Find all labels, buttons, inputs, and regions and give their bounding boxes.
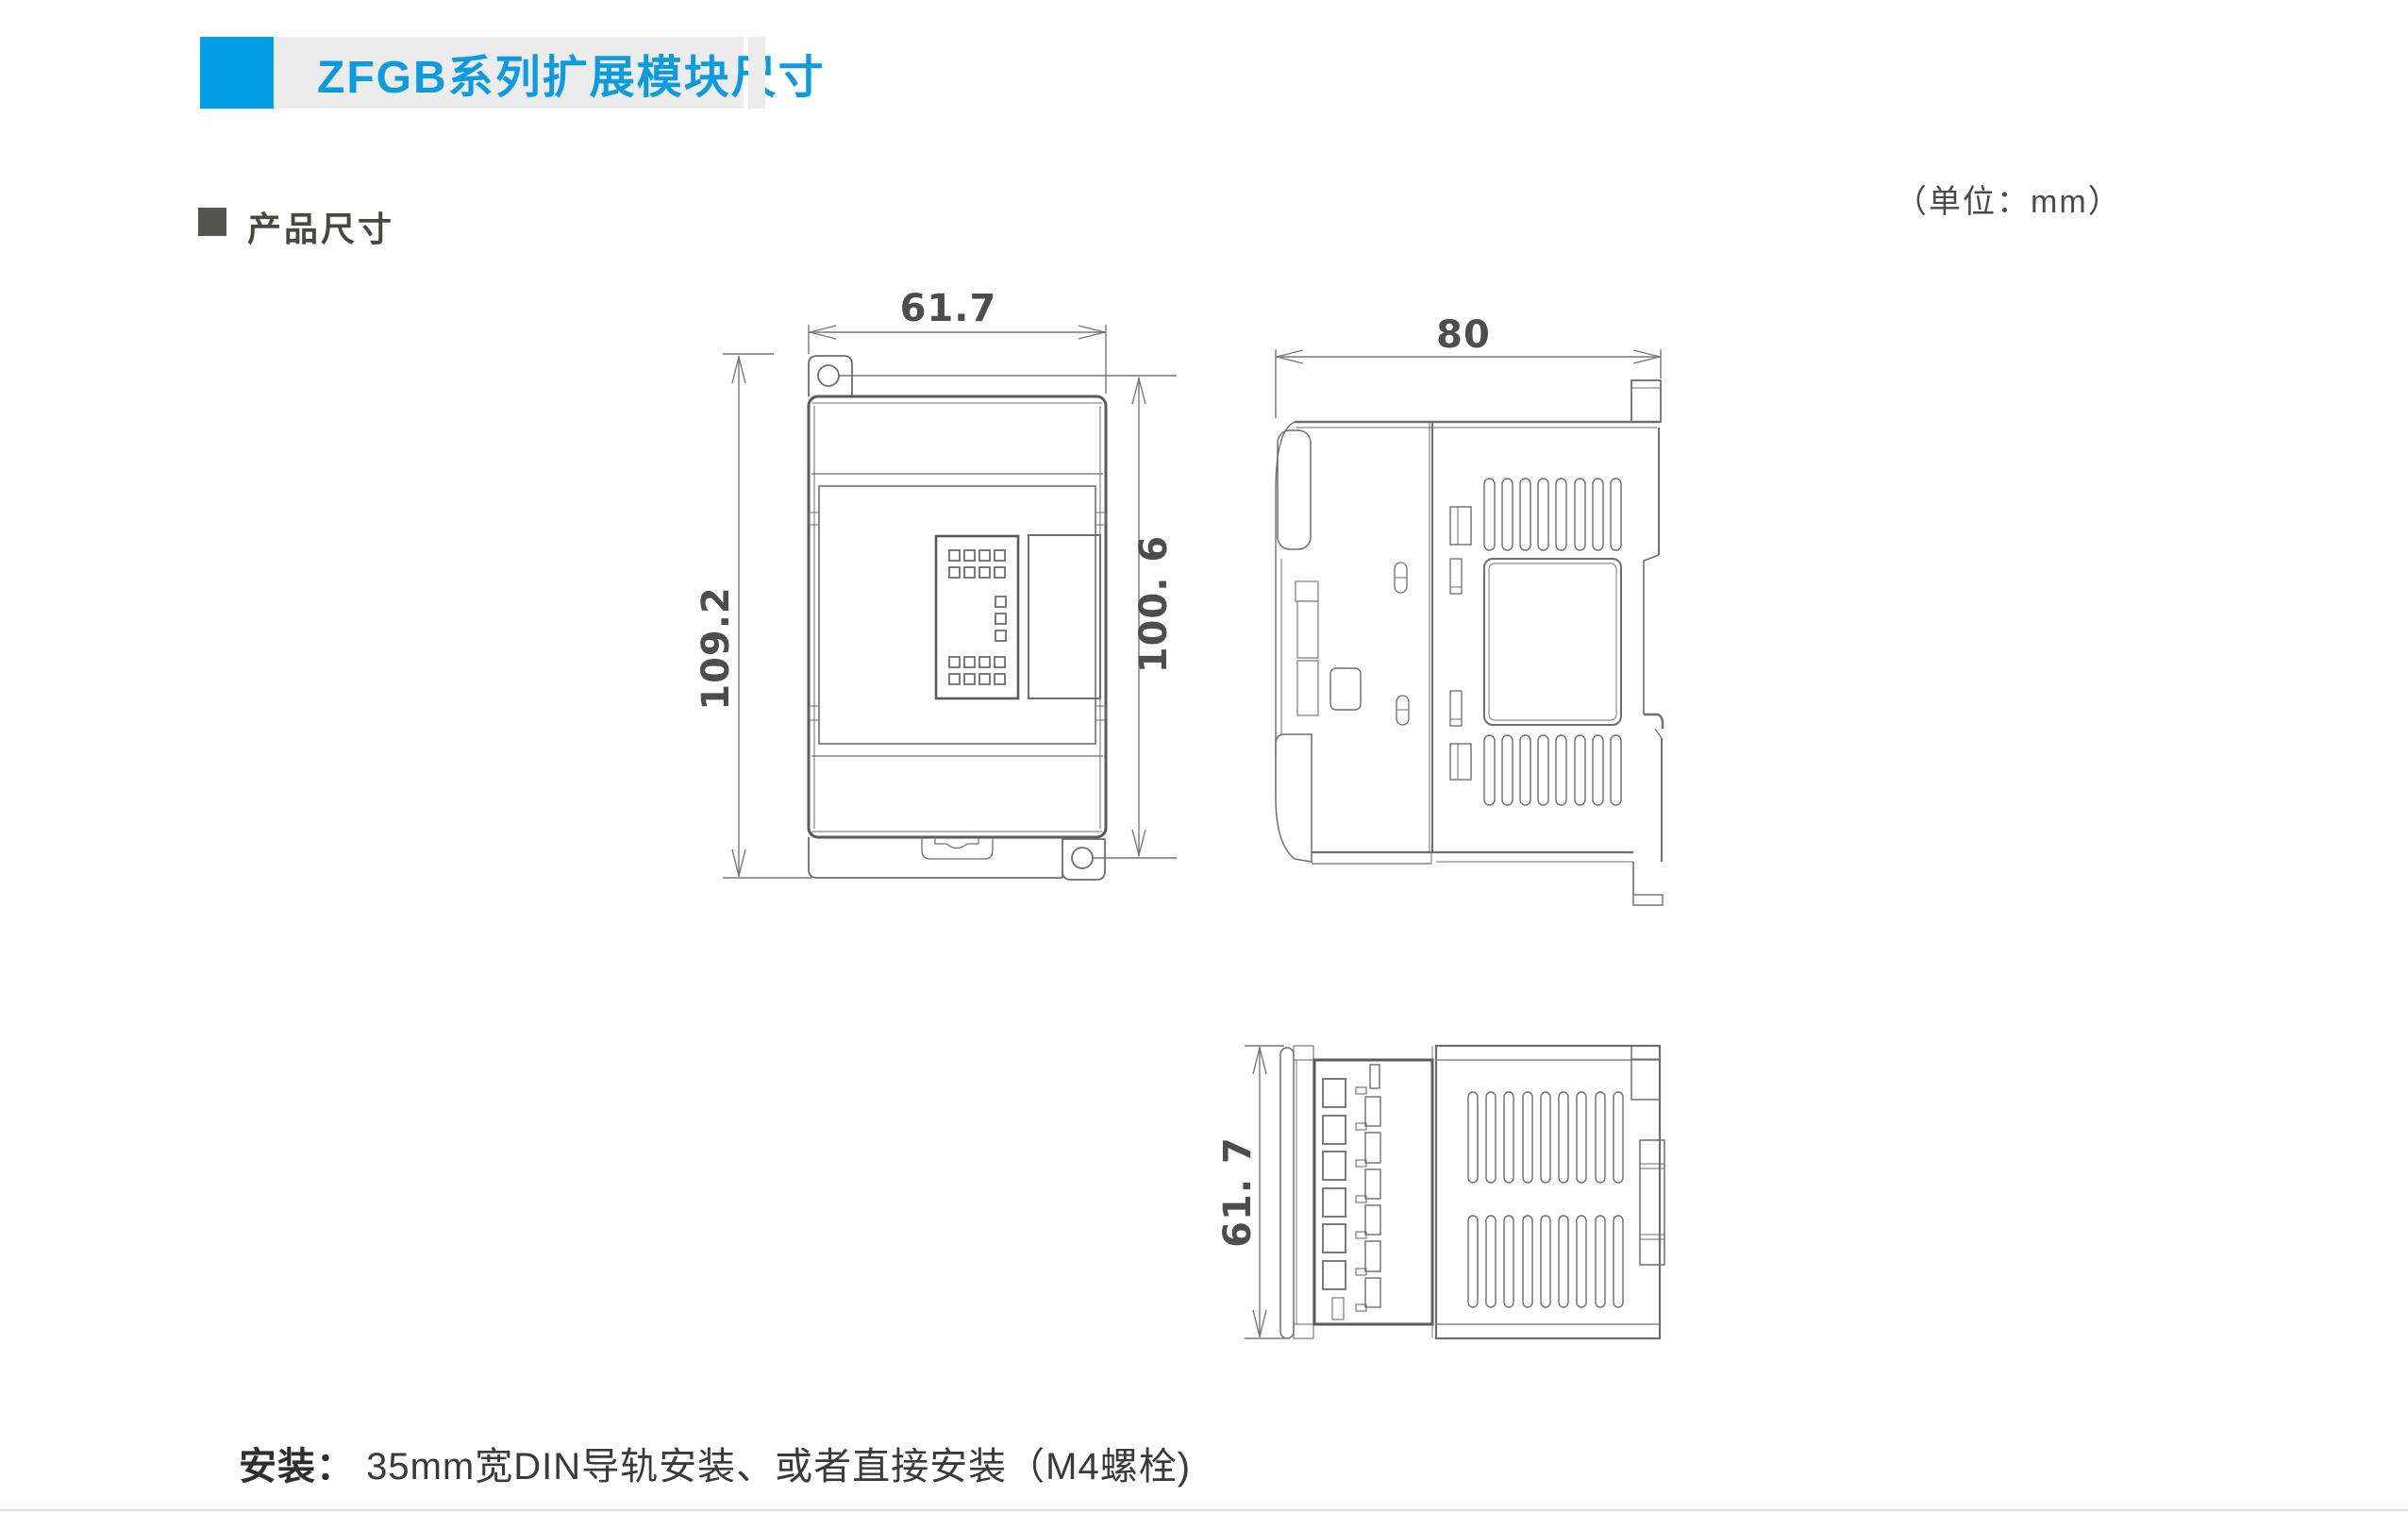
side-module-outline [1276, 380, 1663, 905]
front-width-dimension [809, 325, 1106, 394]
mounting-note-text: 35mm宽DIN导轨安装、或者直接安装（M4螺栓) [355, 1446, 1191, 1488]
front-width-label: 61.7 [882, 287, 1014, 330]
bottom-terminal-screws [1323, 1079, 1346, 1289]
bottom-width-label: 61. 7 [1217, 1107, 1259, 1277]
front-mounting-hole-bottom [1072, 848, 1093, 868]
bottom-view-drawing [1245, 1046, 1664, 1338]
side-vent-slots-top [1484, 479, 1621, 550]
side-depth-label: 80 [1397, 313, 1530, 357]
side-depth-dimension [1276, 349, 1661, 418]
front-mounting-hole-top [818, 365, 839, 386]
bottom-terminal-block [1314, 1060, 1432, 1324]
mounting-note: 安装： 35mm宽DIN导轨安装、或者直接安装（M4螺栓) [239, 1436, 1191, 1490]
side-view-drawing [1276, 349, 1663, 905]
side-nameplate [1484, 559, 1621, 725]
front-view-drawing [723, 325, 1177, 880]
datasheet-page: ZFGB系列扩展模块尺寸 （单位：mm） 产品尺寸 [0, 0, 2408, 1513]
page-bottom-rule [0, 1509, 2408, 1511]
dimension-drawings [0, 0, 2408, 1513]
front-module-outline [809, 356, 1106, 880]
front-terminal-cover [1028, 535, 1100, 698]
bottom-terminal-cells [1365, 1065, 1380, 1307]
front-led-squares [949, 550, 1006, 684]
bottom-vent-slots-top [1468, 1092, 1623, 1183]
front-hole-pitch-dimension [838, 376, 1177, 858]
mounting-note-label: 安装： [239, 1446, 355, 1488]
bottom-vent-slots-bottom [1468, 1216, 1623, 1307]
bottom-module-outline [1280, 1046, 1664, 1338]
side-vent-slots-bottom [1484, 735, 1621, 805]
front-hole-pitch-label: 100. 6 [1133, 519, 1175, 689]
front-height-label: 109.2 [695, 563, 737, 733]
